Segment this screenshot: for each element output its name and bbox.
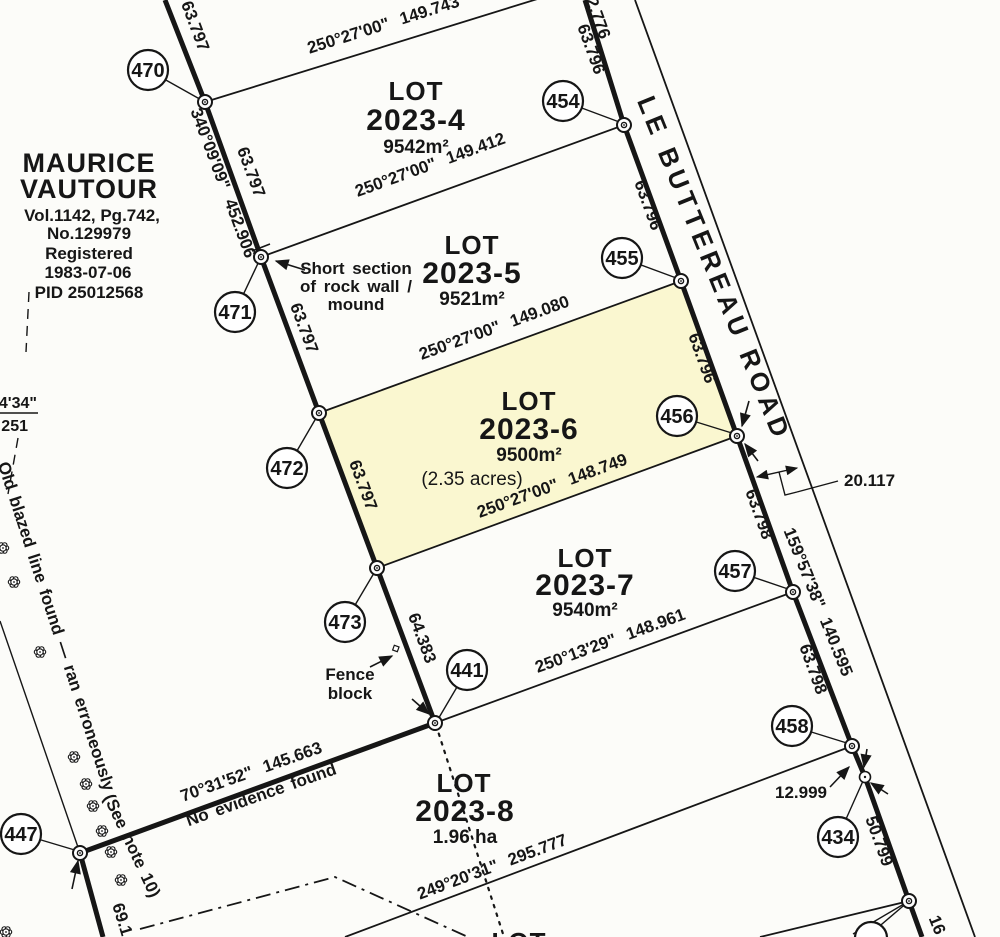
lot6-area: 9500m² [496, 445, 562, 466]
fraction-top: 4'34" [0, 395, 37, 412]
monument [674, 274, 688, 288]
lot7-area: 9540m² [552, 600, 618, 621]
station-471: 471 [215, 292, 255, 332]
fraction-bottom: 251 [1, 418, 28, 435]
monument [730, 429, 744, 443]
station-457: 457 [715, 551, 755, 591]
station-472: 472 [267, 448, 307, 488]
lot4-word: LOT [389, 76, 444, 106]
station-447: 447 [1, 814, 41, 854]
lot7-number: 2023-7 [535, 569, 634, 602]
lot6-word: LOT [502, 386, 557, 416]
monument [312, 406, 326, 420]
road-width-value: 20.117 [844, 471, 895, 490]
lot6-area-acres: (2.35 acres) [421, 469, 522, 490]
station-473-number: 473 [328, 612, 361, 634]
monument [370, 561, 384, 575]
monument [73, 846, 87, 860]
station-441: 441 [447, 650, 487, 690]
station-434: 434 [818, 817, 858, 857]
lot-bottom-partial-word: LOT [492, 927, 547, 937]
station-441-number: 441 [450, 660, 483, 682]
station-456-number: 456 [660, 406, 693, 428]
offset-12999-value: 12.999 [775, 783, 827, 802]
station-455: 455 [602, 238, 642, 278]
rock-wall-line2: of rock wall / [300, 277, 412, 296]
owner-no: No.129979 [47, 224, 131, 243]
owner-registered: Registered [45, 244, 133, 263]
station-457-number: 457 [718, 561, 751, 583]
fence-block-note: Fence block [325, 665, 374, 703]
station-458: 458 [772, 706, 812, 746]
survey-plan-drawing: 470 471 472 473 441 447 454 455 456 457 … [0, 0, 1000, 937]
station-470-number: 470 [131, 60, 164, 82]
owner-name-line2: VAUTOUR [20, 174, 158, 204]
survey-plan-page: 470 471 472 473 441 447 454 455 456 457 … [0, 0, 1000, 937]
monument-small [860, 772, 871, 783]
station-434-number: 434 [821, 827, 855, 849]
monument [845, 739, 859, 753]
lot5-number: 2023-5 [422, 257, 521, 290]
lot5-area: 9521m² [439, 289, 505, 310]
monument [428, 716, 442, 730]
station-454: 454 [543, 81, 583, 121]
lot8-number: 2023-8 [415, 795, 514, 828]
station-458-number: 458 [775, 716, 808, 738]
owner-vol: Vol.1142, Pg.742, [24, 206, 160, 225]
station-471-number: 471 [218, 302, 251, 324]
station-473: 473 [325, 602, 365, 642]
station-454-number: 454 [546, 91, 580, 113]
lot6-number: 2023-6 [479, 413, 578, 446]
lot5-word: LOT [445, 230, 500, 260]
fence-block-marker [393, 645, 399, 651]
fence-line2: block [328, 684, 373, 703]
station-455-number: 455 [605, 248, 638, 270]
station-447-number: 447 [4, 824, 37, 846]
station-456: 456 [657, 396, 697, 436]
owner-pid: PID 25012568 [35, 283, 144, 302]
fence-line1: Fence [325, 665, 374, 684]
monument [902, 894, 916, 908]
lot8-area: 1.96 ha [433, 827, 498, 848]
lot8-word: LOT [437, 768, 492, 798]
rock-wall-line1: Short section [300, 259, 412, 278]
station-470: 470 [128, 50, 168, 90]
lot4-number: 2023-4 [366, 104, 465, 137]
owner-date: 1983-07-06 [45, 263, 132, 282]
station-472-number: 472 [270, 458, 303, 480]
monument [786, 585, 800, 599]
rock-wall-line3: mound [328, 295, 385, 314]
monument [617, 118, 631, 132]
